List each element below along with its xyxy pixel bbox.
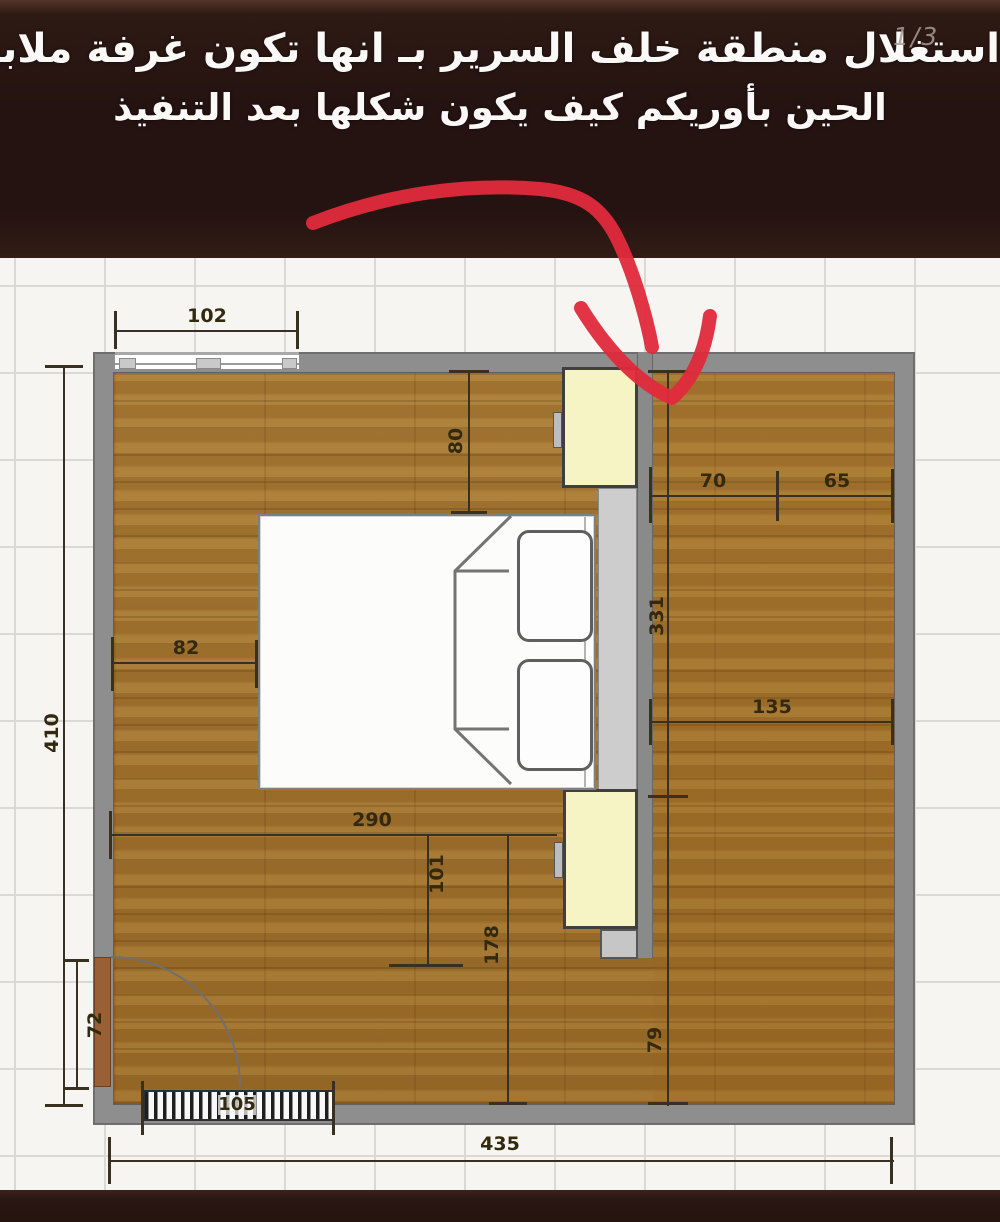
dim-tick xyxy=(648,370,688,373)
bed-back-panel xyxy=(598,488,637,790)
window-pane xyxy=(282,358,297,369)
dim-window-width: 102 xyxy=(182,306,232,326)
wardrobe-top-handle xyxy=(553,412,562,448)
dim-radiator-width: 105 xyxy=(218,1095,256,1115)
dim-line-window xyxy=(115,330,299,332)
dim-line-closet-width xyxy=(651,721,894,723)
dim-tick xyxy=(65,1087,89,1090)
dim-line-door xyxy=(76,961,78,1089)
dim-inner-b: 178 xyxy=(482,921,502,969)
caption-line-2: الحين بأوريكم كيف يكون شكلها بعد التنفيذ xyxy=(0,86,1000,129)
dim-tick xyxy=(65,959,89,962)
dim-closet-seg-a: 70 xyxy=(688,471,738,491)
pillow xyxy=(517,659,593,771)
dim-tick xyxy=(45,1104,83,1107)
dim-tick xyxy=(108,1137,111,1184)
dim-line-bed-side-gap xyxy=(113,662,258,664)
dim-tick xyxy=(649,699,652,745)
dim-line-top-gap xyxy=(468,372,470,514)
dim-tick xyxy=(141,1081,144,1135)
closet-partition-wall xyxy=(637,352,653,958)
caption-line-1-text: استغلال منطقة خلف السرير بـ انها تكون غر… xyxy=(0,26,1000,72)
window xyxy=(115,352,299,369)
dim-line-left-wall xyxy=(63,367,65,1107)
dim-tick xyxy=(648,1102,688,1105)
dim-tick xyxy=(109,811,112,859)
dim-left-wall-height: 410 xyxy=(42,709,62,757)
dim-closet-width: 135 xyxy=(747,697,797,717)
caption-line-1: استغلال منطقة خلف السرير بـ انها تكون غر… xyxy=(0,26,1000,84)
dim-line-bed-run xyxy=(111,834,557,836)
dim-tick xyxy=(296,311,299,349)
wardrobe-bottom-handle xyxy=(554,842,563,878)
dim-line-closet-length xyxy=(667,372,669,1106)
dim-door-width: 72 xyxy=(85,1001,105,1049)
footer-bar xyxy=(0,1190,1000,1222)
dim-closet-seg-b: 65 xyxy=(812,471,862,491)
dim-line-bottom-wall xyxy=(110,1160,894,1162)
dim-tick xyxy=(891,699,894,745)
dim-closet-length: 331 xyxy=(647,592,667,640)
dim-bed-run: 290 xyxy=(347,810,397,830)
window-pane xyxy=(196,358,221,369)
dim-line-inner-b xyxy=(507,835,509,1105)
dim-tick xyxy=(489,1102,527,1105)
dim-tick xyxy=(255,640,258,688)
dim-top-gap: 80 xyxy=(446,417,466,465)
dim-tick xyxy=(648,795,688,798)
dim-tick xyxy=(449,370,489,373)
dim-tick xyxy=(891,469,894,523)
dim-bottom-wall-width: 435 xyxy=(475,1134,525,1154)
dim-tick xyxy=(332,1081,335,1135)
dim-tick xyxy=(111,637,114,691)
dim-closet-opening: 79 xyxy=(645,1016,665,1064)
pillow xyxy=(517,530,593,642)
dim-tick xyxy=(451,511,487,514)
window-pane xyxy=(119,358,136,369)
page-indicator: 1/3 xyxy=(893,22,939,51)
partition-end-cap xyxy=(600,929,638,959)
wardrobe-top xyxy=(562,367,638,488)
caption-header: استغلال منطقة خلف السرير بـ انها تكون غر… xyxy=(0,0,1000,258)
screenshot-page: استغلال منطقة خلف السرير بـ انها تكون غر… xyxy=(0,0,1000,1222)
dim-tick xyxy=(649,467,652,523)
dim-tick xyxy=(114,311,117,349)
dim-tick xyxy=(890,1137,893,1184)
dim-line-closet-segments xyxy=(651,495,894,497)
wardrobe-bottom xyxy=(563,789,638,929)
dim-tick xyxy=(776,471,779,521)
dim-tick xyxy=(389,964,463,967)
dim-inner-a: 101 xyxy=(427,850,447,898)
dim-bed-side-gap: 82 xyxy=(161,638,211,658)
dim-tick xyxy=(45,365,83,368)
